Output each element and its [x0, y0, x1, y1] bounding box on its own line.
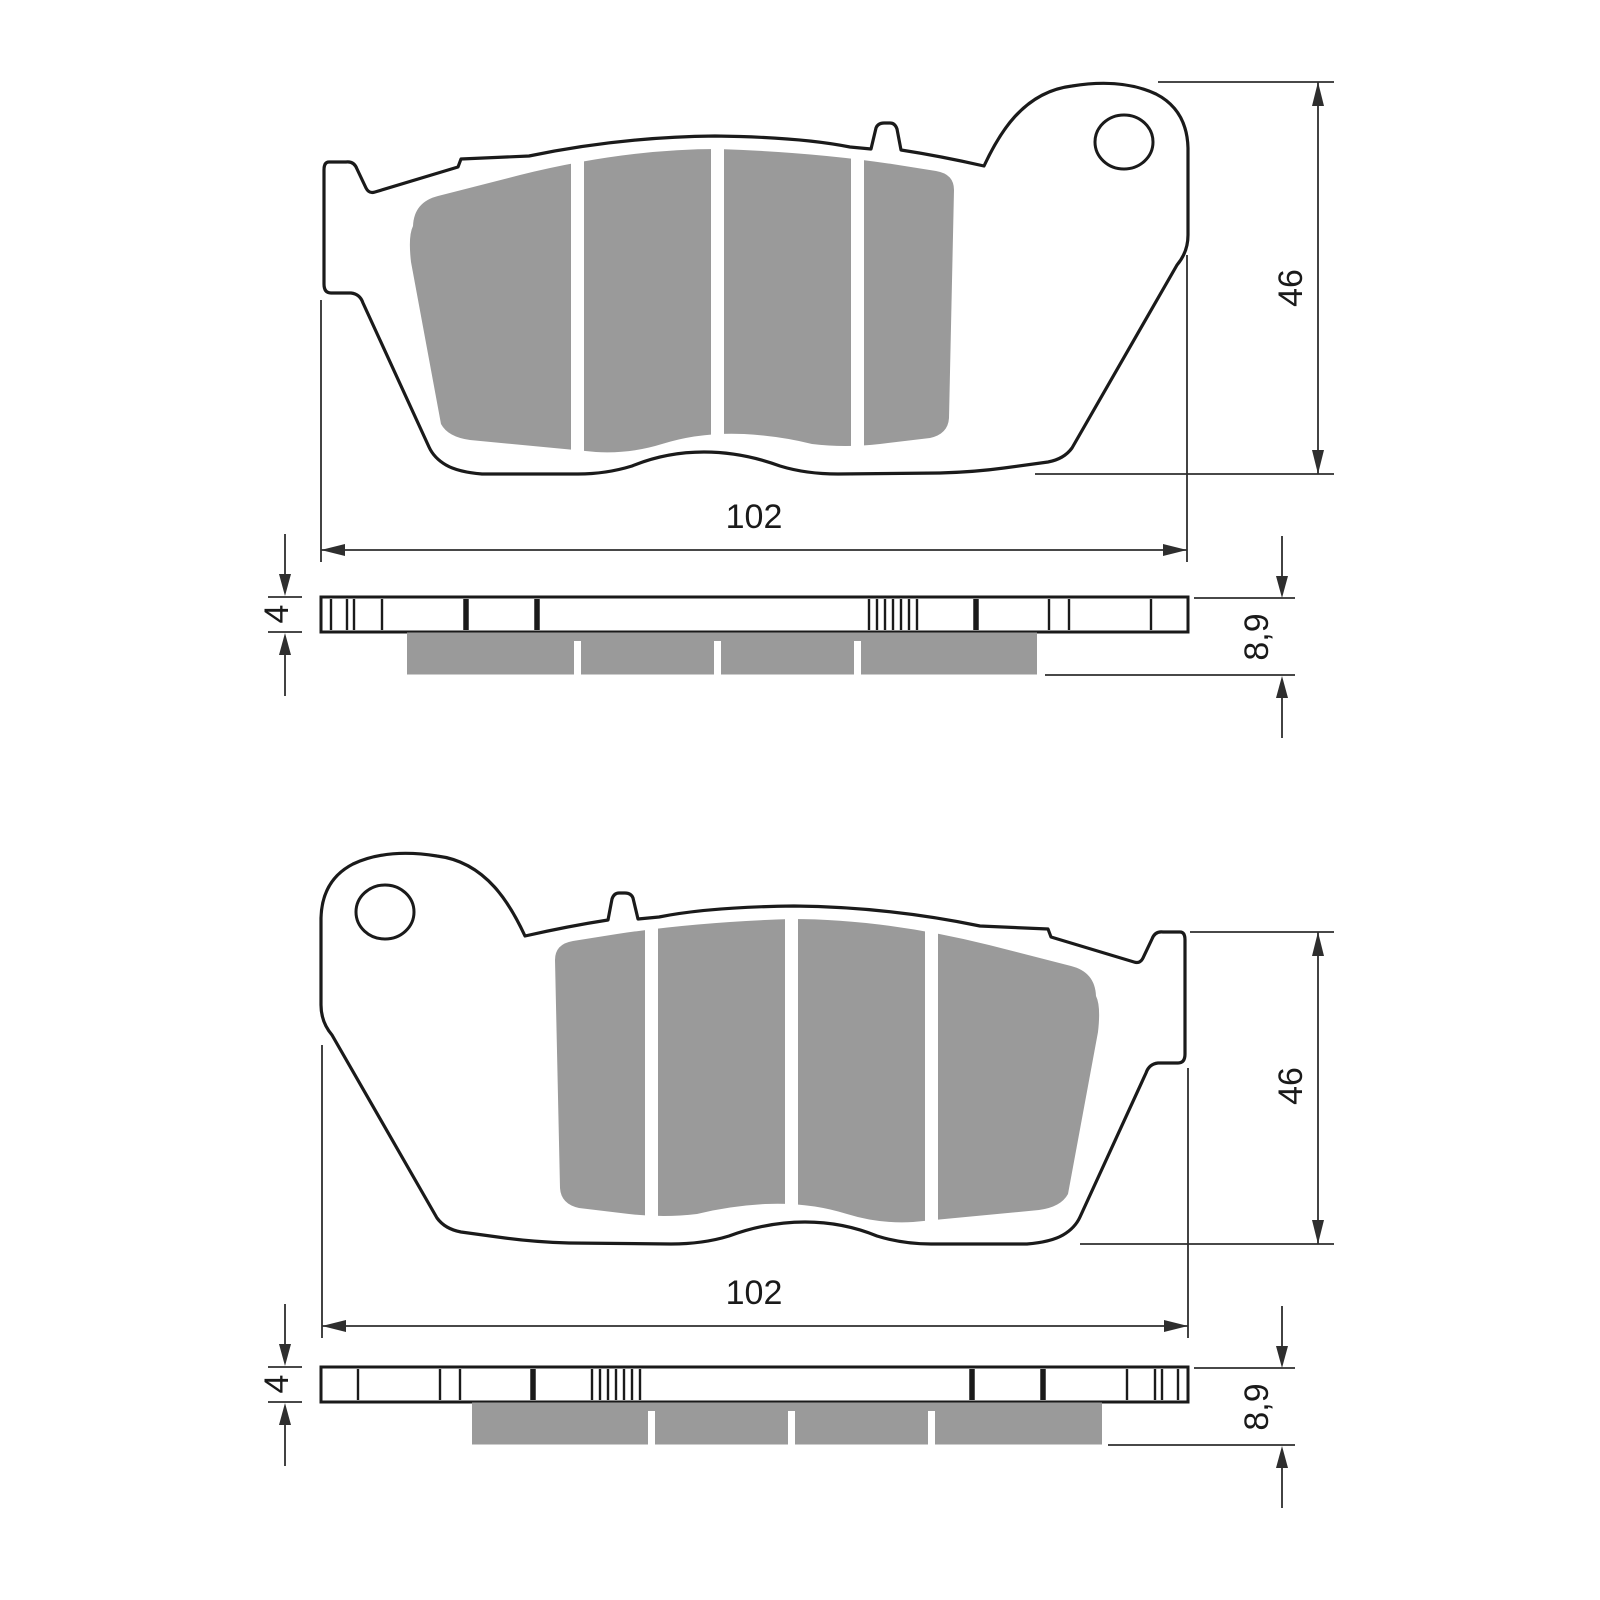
dimension-label-total-bottom: 8,9: [1238, 1383, 1276, 1430]
arrowhead-down: [1312, 450, 1324, 474]
pad-drawing-top: [321, 83, 1188, 675]
dimension-label-total-top: 8,9: [1238, 613, 1276, 660]
arrowhead-right: [1163, 544, 1187, 556]
dimension-label-width-top: 102: [726, 498, 783, 536]
arrowhead-left: [321, 544, 345, 556]
dimension-total-thickness-bottom: 8,9: [1108, 1306, 1295, 1508]
dimension-label-height-top: 46: [1272, 269, 1310, 307]
dimension-label-width-bottom: 102: [726, 1274, 783, 1312]
arrowhead-up: [279, 1403, 291, 1425]
brake-pad-technical-drawing: 102 46 4 8,9 102: [0, 0, 1600, 1600]
dimension-label-plate-top: 4: [258, 605, 296, 624]
arrowhead-up: [1312, 82, 1324, 106]
drawing-canvas: 102 46 4 8,9 102: [0, 0, 1600, 1600]
arrowhead-down: [1312, 1220, 1324, 1244]
dimension-plate-thickness-bottom: 4: [258, 1304, 302, 1466]
dimension-plate-thickness-top: 4: [258, 534, 302, 696]
pad-drawing-bottom: [321, 853, 1188, 1445]
arrowhead-left: [322, 1320, 346, 1332]
arrowhead-right: [1164, 1320, 1188, 1332]
arrowhead-up: [1312, 932, 1324, 956]
arrowhead-down: [1276, 1346, 1288, 1368]
dimension-total-thickness-top: 8,9: [1045, 536, 1295, 738]
arrowhead-down: [1276, 576, 1288, 598]
arrowhead-up: [1276, 676, 1288, 698]
dimension-label-plate-bottom: 4: [258, 1375, 296, 1394]
arrowhead-up: [1276, 1446, 1288, 1468]
dimension-label-height-bottom: 46: [1272, 1067, 1310, 1105]
arrowhead-down: [279, 1344, 291, 1366]
arrowhead-up: [279, 633, 291, 655]
arrowhead-down: [279, 574, 291, 596]
